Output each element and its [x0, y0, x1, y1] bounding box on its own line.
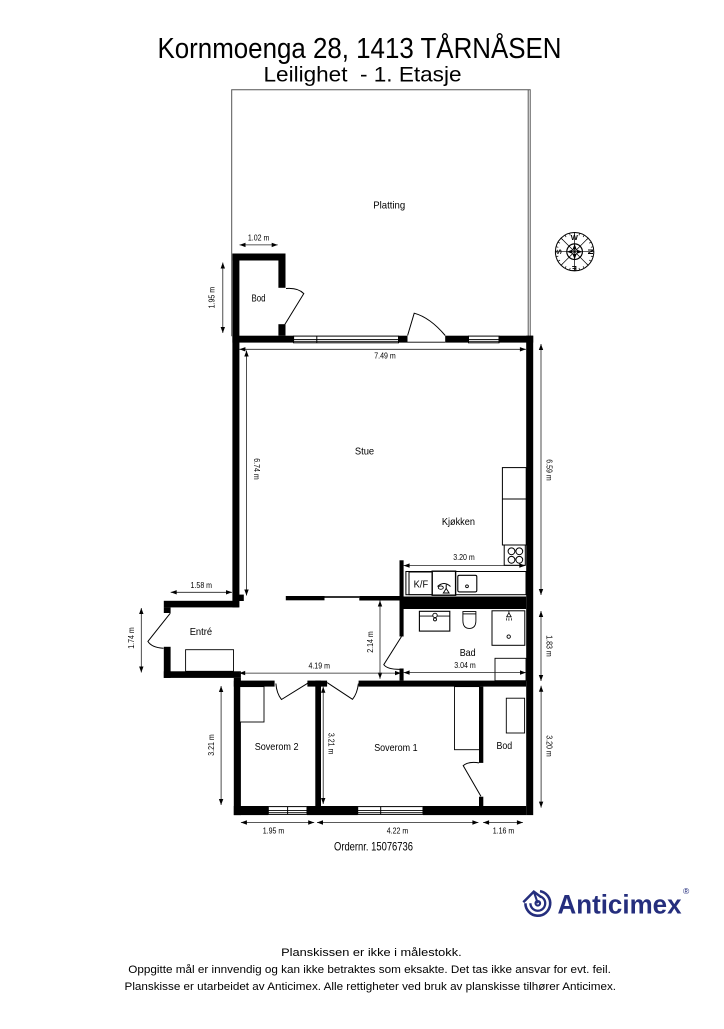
svg-text:1.16 m: 1.16 m [493, 825, 515, 835]
svg-text:2.14 m: 2.14 m [365, 631, 375, 653]
svg-text:1.83 m: 1.83 m [544, 635, 554, 657]
svg-text:1.74 m: 1.74 m [126, 627, 136, 649]
svg-text:1.95 m: 1.95 m [207, 287, 217, 309]
svg-text:4.22 m: 4.22 m [387, 825, 409, 835]
svg-text:Stue: Stue [355, 447, 375, 458]
svg-text:Bod: Bod [251, 293, 265, 304]
svg-text:®: ® [683, 886, 690, 896]
svg-text:6.74 m: 6.74 m [252, 458, 262, 480]
svg-text:3.20 m: 3.20 m [545, 735, 555, 757]
svg-text:E: E [572, 264, 577, 273]
svg-text:Bad: Bad [460, 648, 476, 659]
svg-text:6.59 m: 6.59 m [544, 459, 554, 481]
svg-text:S: S [554, 249, 563, 254]
svg-text:Planskisse er utarbeidet av An: Planskisse er utarbeidet av Anticimex. A… [125, 981, 617, 993]
svg-text:N: N [586, 249, 595, 254]
svg-text:3.21 m: 3.21 m [326, 733, 336, 755]
svg-text:Ordernr. 15076736: Ordernr. 15076736 [334, 840, 413, 854]
svg-text:Entré: Entré [190, 627, 213, 638]
svg-text:Soverom 2: Soverom 2 [255, 742, 299, 753]
svg-text:Platting: Platting [373, 201, 405, 212]
svg-text:Leilighet - 1. Etasje: Leilighet - 1. Etasje [264, 63, 462, 87]
svg-text:7.49 m: 7.49 m [374, 351, 396, 361]
svg-text:Planskissen er ikke i målestok: Planskissen er ikke i målestokk. [281, 947, 462, 959]
svg-text:4.19 m: 4.19 m [308, 660, 330, 670]
svg-text:3.20 m: 3.20 m [453, 552, 475, 562]
svg-text:Kornmoenga 28, 1413 TÅRNÅSEN: Kornmoenga 28, 1413 TÅRNÅSEN [158, 33, 562, 65]
svg-text:Soverom 1: Soverom 1 [374, 743, 418, 754]
svg-text:1.58 m: 1.58 m [191, 580, 213, 590]
svg-text:W: W [571, 233, 579, 242]
svg-text:Bod: Bod [496, 741, 512, 752]
svg-text:Oppgitte mål er innvendig og k: Oppgitte mål er innvendig og kan ikke be… [128, 964, 611, 976]
svg-text:1.02 m: 1.02 m [248, 233, 270, 243]
svg-text:1.95 m: 1.95 m [263, 825, 285, 835]
svg-text:Anticimex: Anticimex [558, 890, 682, 920]
svg-text:K/F: K/F [414, 579, 429, 590]
svg-text:3.21 m: 3.21 m [206, 734, 216, 756]
svg-text:Kjøkken: Kjøkken [442, 517, 475, 528]
svg-text:3.04 m: 3.04 m [454, 660, 476, 670]
